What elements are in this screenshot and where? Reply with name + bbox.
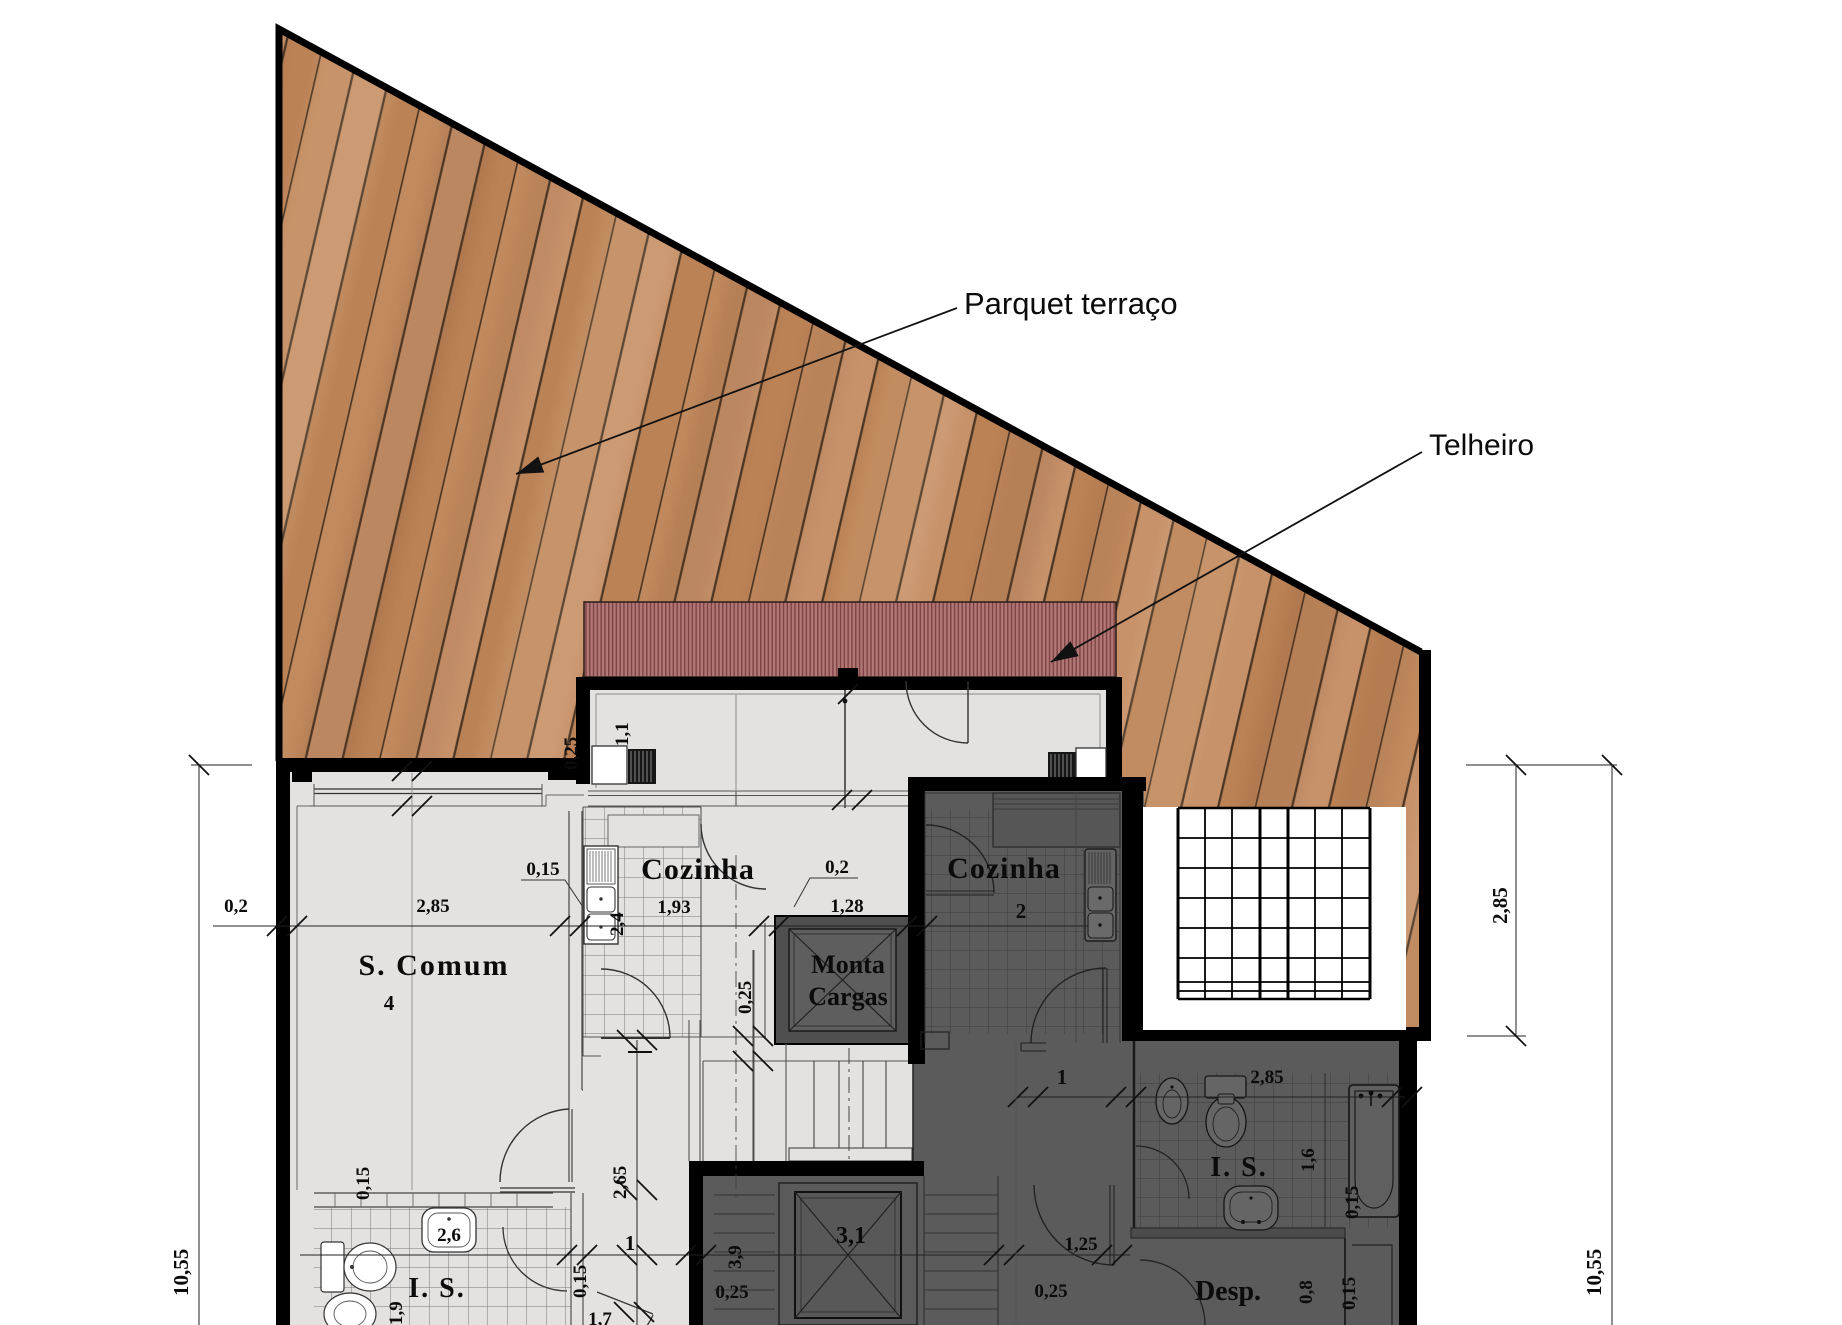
svg-text:I. S.: I. S. (408, 1273, 465, 1304)
svg-text:10,55: 10,55 (169, 1249, 193, 1296)
svg-text:1,6: 1,6 (1298, 1148, 1319, 1172)
svg-text:1,93: 1,93 (657, 897, 690, 918)
svg-text:10,55: 10,55 (1582, 1249, 1606, 1296)
svg-text:Cozinha: Cozinha (641, 853, 755, 886)
svg-text:3,1: 3,1 (836, 1223, 866, 1249)
svg-text:0,25: 0,25 (715, 1282, 748, 1303)
svg-text:2: 2 (1016, 899, 1027, 923)
svg-text:0,15: 0,15 (526, 859, 559, 880)
svg-text:3,9: 3,9 (725, 1245, 746, 1269)
svg-text:I. S.: I. S. (1210, 1152, 1267, 1183)
svg-text:0,25: 0,25 (1034, 1281, 1067, 1302)
svg-text:Parquet terraço: Parquet terraço (964, 286, 1178, 321)
svg-text:2,65: 2,65 (610, 1166, 631, 1199)
svg-text:2,6: 2,6 (437, 1225, 461, 1246)
svg-text:0,8: 0,8 (1296, 1280, 1317, 1304)
svg-text:2,85: 2,85 (1488, 887, 1512, 924)
svg-text:2,85: 2,85 (1250, 1067, 1283, 1088)
svg-text:0,15: 0,15 (570, 1265, 591, 1298)
svg-text:0,25: 0,25 (561, 737, 582, 770)
svg-text:S. Comum: S. Comum (358, 949, 509, 982)
svg-text:Cozinha: Cozinha (947, 852, 1061, 885)
svg-text:1: 1 (1057, 1065, 1068, 1089)
svg-text:0,25: 0,25 (735, 981, 756, 1014)
svg-text:1,9: 1,9 (386, 1301, 407, 1325)
svg-text:0,15: 0,15 (1339, 1277, 1360, 1310)
svg-text:Desp.: Desp. (1195, 1276, 1261, 1307)
svg-text:Cargas: Cargas (808, 982, 887, 1011)
svg-text:0,15: 0,15 (1342, 1186, 1363, 1219)
svg-text:Telheiro: Telheiro (1429, 429, 1534, 462)
svg-text:1,28: 1,28 (830, 896, 863, 917)
svg-text:0,2: 0,2 (224, 896, 248, 917)
svg-text:0,2: 0,2 (825, 857, 849, 878)
svg-text:1,25: 1,25 (1064, 1234, 1097, 1255)
svg-text:1,7: 1,7 (588, 1309, 612, 1325)
svg-text:1: 1 (625, 1231, 636, 1255)
svg-text:Monta: Monta (811, 950, 885, 979)
svg-text:1,1: 1,1 (612, 722, 633, 746)
svg-text:2,4: 2,4 (607, 912, 628, 936)
svg-text:4: 4 (384, 991, 395, 1015)
svg-text:0,15: 0,15 (353, 1167, 374, 1200)
svg-text:2,85: 2,85 (416, 896, 449, 917)
